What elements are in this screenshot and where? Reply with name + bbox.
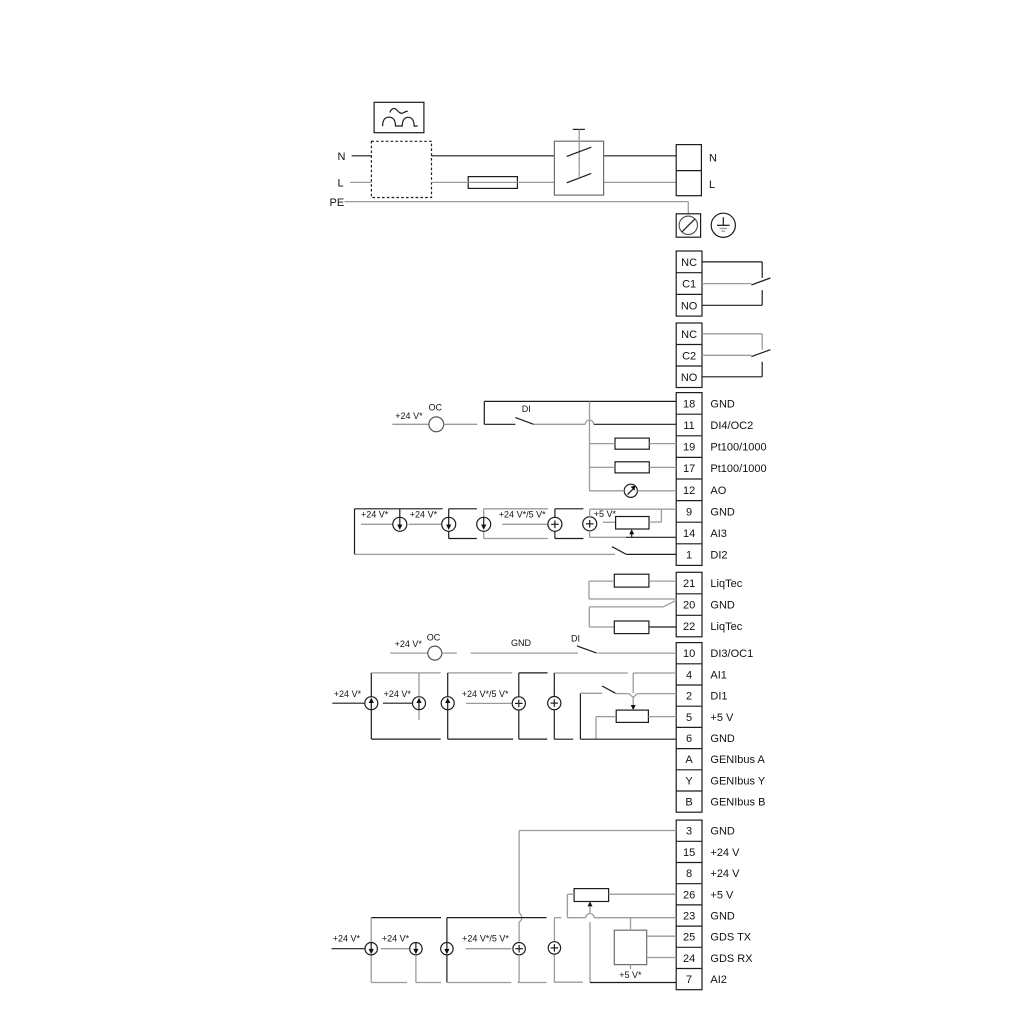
svg-text:7: 7 [686, 974, 692, 986]
svg-text:GND: GND [710, 733, 735, 745]
svg-text:L: L [709, 179, 715, 191]
svg-text:GND: GND [710, 911, 735, 923]
svg-text:GND: GND [710, 600, 735, 612]
svg-text:A: A [685, 754, 693, 766]
svg-text:GENIbus B: GENIbus B [710, 797, 765, 809]
svg-text:10: 10 [683, 648, 695, 660]
svg-text:20: 20 [683, 600, 695, 612]
svg-text:25: 25 [683, 932, 695, 944]
svg-text:GND: GND [710, 506, 735, 518]
svg-text:DI3/OC1: DI3/OC1 [710, 648, 753, 660]
svg-text:+5 V: +5 V [710, 889, 734, 901]
svg-text:23: 23 [683, 911, 695, 923]
svg-text:DI1: DI1 [710, 691, 727, 703]
svg-text:AI2: AI2 [710, 974, 727, 986]
svg-text:+5 V: +5 V [710, 712, 734, 724]
svg-text:+24 V*/5 V*: +24 V*/5 V* [499, 509, 546, 519]
svg-text:LiqTec: LiqTec [710, 578, 742, 590]
svg-text:NC: NC [681, 329, 697, 341]
svg-text:GND: GND [710, 398, 735, 410]
svg-text:+24 V: +24 V [710, 868, 740, 880]
svg-text:+24 V*: +24 V* [395, 639, 423, 649]
svg-text:Pt100/1000: Pt100/1000 [710, 463, 766, 475]
svg-text:GENIbus Y: GENIbus Y [710, 775, 765, 787]
svg-text:9: 9 [686, 506, 692, 518]
svg-text:GND: GND [511, 638, 532, 648]
svg-text:21: 21 [683, 578, 695, 590]
svg-text:15: 15 [683, 847, 695, 859]
svg-text:N: N [709, 153, 717, 165]
svg-text:12: 12 [683, 485, 695, 497]
svg-text:PE: PE [330, 197, 345, 209]
svg-text:NO: NO [681, 372, 698, 384]
svg-text:+5 V*: +5 V* [619, 970, 642, 980]
svg-text:Pt100/1000: Pt100/1000 [710, 442, 766, 454]
svg-text:26: 26 [683, 889, 695, 901]
svg-text:+24 V*: +24 V* [384, 689, 412, 699]
svg-text:+24 V*/5 V*: +24 V*/5 V* [462, 934, 509, 944]
svg-text:Y: Y [685, 775, 693, 787]
svg-text:17: 17 [683, 463, 695, 475]
svg-text:22: 22 [683, 621, 695, 633]
svg-text:NO: NO [681, 300, 698, 312]
svg-text:L: L [338, 178, 344, 190]
svg-text:11: 11 [683, 420, 694, 432]
svg-text:5: 5 [686, 712, 692, 724]
svg-text:GDS TX: GDS TX [710, 932, 751, 944]
svg-text:AO: AO [710, 485, 726, 497]
svg-text:B: B [685, 797, 692, 809]
svg-text:DI4/OC2: DI4/OC2 [710, 420, 753, 432]
svg-text:+24 V: +24 V [710, 847, 740, 859]
svg-text:2: 2 [686, 691, 692, 703]
svg-text:18: 18 [683, 398, 695, 410]
svg-text:+24 V*: +24 V* [334, 689, 362, 699]
svg-text:+24 V*: +24 V* [410, 510, 438, 520]
svg-text:DI: DI [522, 404, 531, 414]
svg-text:N: N [338, 151, 346, 163]
svg-text:19: 19 [683, 442, 695, 454]
svg-text:GND: GND [710, 826, 735, 838]
svg-text:+24 V*: +24 V* [382, 934, 410, 944]
svg-text:+24 V*: +24 V* [333, 934, 361, 944]
svg-text:+24 V*: +24 V* [361, 510, 389, 520]
svg-text:+24 V*/5 V*: +24 V*/5 V* [462, 689, 509, 699]
svg-text:6: 6 [686, 733, 692, 745]
svg-text:DI: DI [571, 634, 580, 644]
svg-text:C1: C1 [682, 279, 696, 291]
svg-text:8: 8 [686, 868, 692, 880]
svg-text:3: 3 [686, 826, 692, 838]
svg-text:14: 14 [683, 528, 695, 540]
svg-text:+5 V*: +5 V* [594, 509, 617, 519]
svg-text:24: 24 [683, 953, 695, 965]
svg-text:+24 V*: +24 V* [395, 411, 423, 421]
svg-text:DI2: DI2 [710, 550, 727, 562]
svg-text:C2: C2 [682, 350, 696, 362]
svg-text:AI3: AI3 [710, 528, 727, 540]
svg-text:AI1: AI1 [710, 669, 727, 681]
svg-text:NC: NC [681, 257, 697, 269]
svg-text:1: 1 [686, 550, 692, 562]
svg-text:OC: OC [427, 632, 441, 642]
svg-text:OC: OC [429, 403, 443, 413]
svg-text:GENIbus A: GENIbus A [710, 754, 765, 766]
svg-text:LiqTec: LiqTec [710, 621, 742, 633]
svg-text:GDS RX: GDS RX [710, 953, 753, 965]
svg-text:4: 4 [686, 669, 692, 681]
